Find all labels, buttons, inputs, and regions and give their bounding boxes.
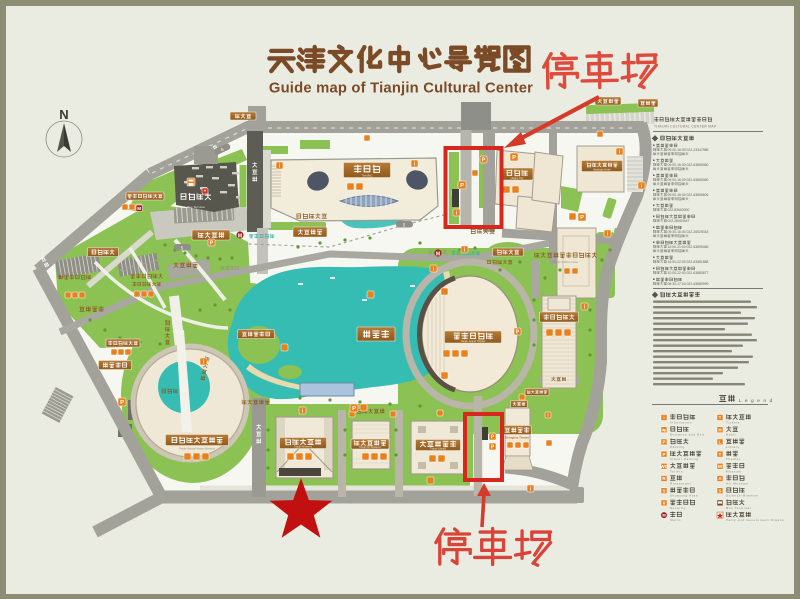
svg-text:Theater: Theater	[726, 457, 741, 461]
svg-text:L: L	[719, 440, 722, 445]
svg-text:Tianjin Grand Theater: Tianjin Grand Theater	[460, 339, 485, 343]
svg-text:10:00-22:00 022-63880877: 10:00-22:00 022-63880877	[668, 271, 709, 275]
svg-text:09:00-16:30 022-63865606: 09:00-16:30 022-63865606	[668, 193, 709, 197]
svg-text:M: M	[137, 206, 141, 211]
svg-text:Zhonghua Theater: Zhonghua Theater	[505, 436, 530, 440]
svg-text:Tianjin Library: Tianjin Library	[430, 446, 447, 450]
svg-text:P: P	[120, 400, 124, 406]
svg-text:Party and Government Organs: Party and Government Organs	[726, 518, 784, 522]
svg-text:Metro: Metro	[670, 518, 681, 522]
svg-text:Art Museum: Art Museum	[726, 482, 749, 486]
svg-text:M: M	[436, 251, 440, 257]
svg-text:10:00-21:00 022-63895466: 10:00-21:00 022-63895466	[668, 245, 709, 249]
svg-text:Toilets: Toilets	[670, 469, 683, 473]
svg-text:S: S	[663, 488, 666, 493]
svg-text:P: P	[460, 183, 464, 189]
svg-text:T: T	[719, 452, 722, 457]
svg-text:10:00-22:00 022-63881888: 10:00-22:00 022-63881888	[668, 260, 709, 264]
svg-text:Indoor Parking: Indoor Parking	[670, 457, 699, 461]
svg-text:022-28053447: 022-28053447	[668, 219, 690, 223]
svg-text:Parking: Parking	[670, 445, 685, 449]
svg-text:N: N	[59, 107, 68, 122]
svg-text:09:00-16:30 022-63865080: 09:00-16:30 022-63865080	[668, 178, 709, 182]
svg-text:T: T	[719, 415, 722, 420]
svg-text:M: M	[238, 233, 242, 239]
svg-text:Library: Library	[726, 445, 740, 449]
svg-text:M: M	[718, 464, 722, 469]
svg-text:Tianjin Museum: Tianjin Museum	[294, 444, 312, 448]
svg-text:The MixC: The MixC	[361, 173, 372, 177]
svg-text:⇋: ⇋	[662, 427, 666, 432]
svg-text:L e g e n d: L e g e n d	[739, 398, 773, 403]
svg-text:Happy City: Happy City	[511, 176, 524, 180]
svg-text:Tianjin Children Center: Tianjin Children Center	[554, 261, 579, 264]
svg-text:P: P	[663, 452, 666, 457]
svg-text:09:00-16:30 022-23347986: 09:00-16:30 022-23347986	[668, 148, 709, 152]
svg-text:Shopping Area: Shopping Area	[670, 494, 698, 498]
svg-text:Museum: Museum	[726, 469, 741, 473]
svg-text:08:30-17:00 022-63880999: 08:30-17:00 022-63880999	[668, 282, 709, 286]
svg-text:i: i	[547, 413, 548, 418]
svg-text:WC: WC	[660, 464, 668, 469]
svg-text:Tianjin Natural History Museum: Tianjin Natural History Museum	[179, 447, 215, 451]
svg-text:Hotel: Hotel	[726, 433, 736, 437]
svg-text:S: S	[719, 488, 722, 493]
svg-text:P: P	[663, 440, 666, 445]
svg-text:Bus Terminal: Bus Terminal	[187, 205, 205, 209]
svg-text:P: P	[512, 155, 516, 161]
svg-text:H: H	[718, 427, 721, 432]
svg-text:Restaurant: Restaurant	[670, 482, 691, 486]
svg-text:TIANJIN CULTURAL CENTER MAP: TIANJIN CULTURAL CENTER MAP	[654, 125, 717, 129]
svg-text:Baokight Hotel: Baokight Hotel	[594, 167, 611, 171]
svg-text:Entrance and Exit: Entrance and Exit	[670, 433, 705, 437]
svg-text:Science Museum: Science Museum	[726, 494, 758, 498]
svg-text:09:00-16:30 022-63865080: 09:00-16:30 022-63865080	[668, 163, 709, 167]
svg-text:Security: Security	[670, 506, 686, 510]
svg-text:Guide map of Tianjin Cultural: Guide map of Tianjin Cultural Center	[269, 81, 533, 97]
svg-text:Tickets: Tickets	[726, 421, 740, 425]
svg-text:i: i	[663, 415, 664, 420]
svg-text:Information: Information	[670, 421, 692, 425]
svg-text:022-83663000: 022-83663000	[668, 208, 690, 212]
svg-text:P: P	[580, 215, 584, 221]
svg-text:Bus Terminal: Bus Terminal	[726, 506, 751, 510]
svg-text:09:30-16:30 022-26525315: 09:30-16:30 022-26525315	[668, 230, 709, 234]
svg-text:Tianjin Art Museum: Tianjin Art Museum	[359, 445, 381, 449]
svg-text:P: P	[352, 406, 356, 412]
